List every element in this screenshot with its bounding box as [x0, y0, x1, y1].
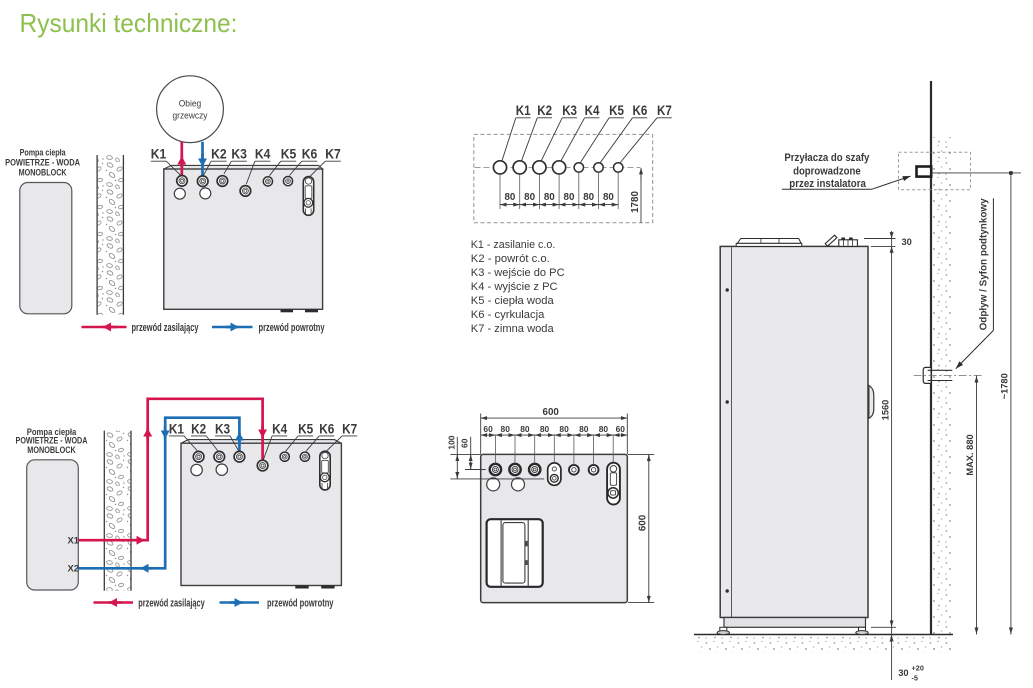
svg-text:X2: X2 — [68, 563, 79, 574]
svg-text:600: 600 — [638, 514, 649, 531]
svg-text:Odpływ / Syfon podtynkowy: Odpływ / Syfon podtynkowy — [979, 198, 990, 330]
svg-text:+20: +20 — [912, 664, 924, 673]
svg-text:doprowadzone: doprowadzone — [793, 165, 861, 177]
svg-text:60: 60 — [460, 438, 470, 448]
svg-text:80: 80 — [520, 424, 530, 434]
svg-text:K5: K5 — [298, 421, 314, 436]
svg-text:K4 - wyjście z PC: K4 - wyjście z PC — [471, 281, 558, 293]
svg-text:80: 80 — [501, 424, 511, 434]
svg-text:K7: K7 — [325, 147, 341, 162]
svg-text:80: 80 — [564, 192, 575, 203]
svg-text:K1: K1 — [516, 103, 531, 118]
svg-text:-5: -5 — [912, 674, 919, 683]
svg-text:600: 600 — [543, 407, 560, 418]
svg-text:30: 30 — [898, 668, 908, 678]
svg-text:K5: K5 — [609, 103, 624, 118]
svg-text:K7: K7 — [342, 421, 357, 436]
svg-text:K2: K2 — [211, 147, 227, 162]
svg-text:K6: K6 — [633, 103, 648, 118]
svg-text:K4: K4 — [255, 147, 271, 162]
svg-text:MONOBLOCK: MONOBLOCK — [27, 445, 76, 455]
svg-text:80: 80 — [583, 192, 594, 203]
svg-text:POWIETRZE - WODA: POWIETRZE - WODA — [5, 157, 81, 167]
svg-text:grzewczy: grzewczy — [173, 111, 208, 121]
svg-text:K3 - wejście do PC: K3 - wejście do PC — [471, 267, 565, 279]
svg-text:80: 80 — [544, 192, 555, 203]
svg-text:K3: K3 — [215, 421, 231, 436]
svg-text:1780: 1780 — [630, 191, 641, 213]
svg-text:1560: 1560 — [880, 400, 890, 421]
svg-text:K3: K3 — [231, 147, 247, 162]
svg-text:K6 - cyrkulacja: K6 - cyrkulacja — [471, 309, 545, 321]
svg-text:K6: K6 — [302, 147, 318, 162]
svg-text:K1 - zasilanie c.o.: K1 - zasilanie c.o. — [471, 239, 556, 251]
svg-text:Przyłacza do szafy: Przyłacza do szafy — [784, 152, 869, 164]
svg-text:80: 80 — [540, 424, 550, 434]
svg-text:K2: K2 — [537, 103, 552, 118]
svg-text:Pompa ciepła: Pompa ciepła — [20, 148, 66, 158]
svg-text:K7: K7 — [657, 103, 672, 118]
svg-text:przez instalatora: przez instalatora — [789, 178, 866, 190]
svg-text:K6: K6 — [319, 421, 335, 436]
svg-text:przewód zasilający: przewód zasilający — [138, 597, 204, 609]
svg-text:Obieg: Obieg — [179, 99, 202, 109]
svg-text:80: 80 — [559, 424, 569, 434]
svg-text:80: 80 — [599, 424, 609, 434]
svg-text:przewód powrotny: przewód powrotny — [267, 597, 334, 609]
svg-text:K3: K3 — [562, 103, 577, 118]
svg-text:80: 80 — [603, 192, 614, 203]
svg-text:przewód powrotny: przewód powrotny — [259, 322, 325, 334]
svg-text:80: 80 — [504, 192, 515, 203]
svg-text:X1: X1 — [68, 534, 79, 545]
svg-text:K7 - zimna woda: K7 - zimna woda — [471, 323, 555, 335]
svg-text:60: 60 — [616, 424, 626, 434]
svg-text:K5: K5 — [281, 147, 297, 162]
svg-text:60: 60 — [483, 424, 493, 434]
svg-text:MAX. 880: MAX. 880 — [965, 434, 975, 475]
svg-text:80: 80 — [524, 192, 535, 203]
svg-text:~1780: ~1780 — [1000, 373, 1010, 399]
svg-text:K2: K2 — [191, 421, 206, 436]
svg-text:MONOBLOCK: MONOBLOCK — [19, 167, 68, 177]
svg-text:100: 100 — [446, 435, 456, 449]
svg-text:K5 - ciepła woda: K5 - ciepła woda — [471, 295, 555, 307]
svg-text:Rysunki techniczne:: Rysunki techniczne: — [20, 8, 238, 38]
svg-text:przewód zasilający: przewód zasilający — [132, 322, 199, 334]
svg-text:30: 30 — [902, 237, 912, 247]
svg-text:K1: K1 — [169, 421, 185, 436]
svg-text:K4: K4 — [272, 421, 288, 436]
svg-text:POWIETRZE - WODA: POWIETRZE - WODA — [16, 435, 88, 445]
svg-text:K1: K1 — [151, 147, 167, 162]
svg-text:80: 80 — [579, 424, 589, 434]
svg-text:K4: K4 — [585, 103, 600, 118]
svg-text:K2 - powrót c.o.: K2 - powrót c.o. — [471, 253, 550, 265]
